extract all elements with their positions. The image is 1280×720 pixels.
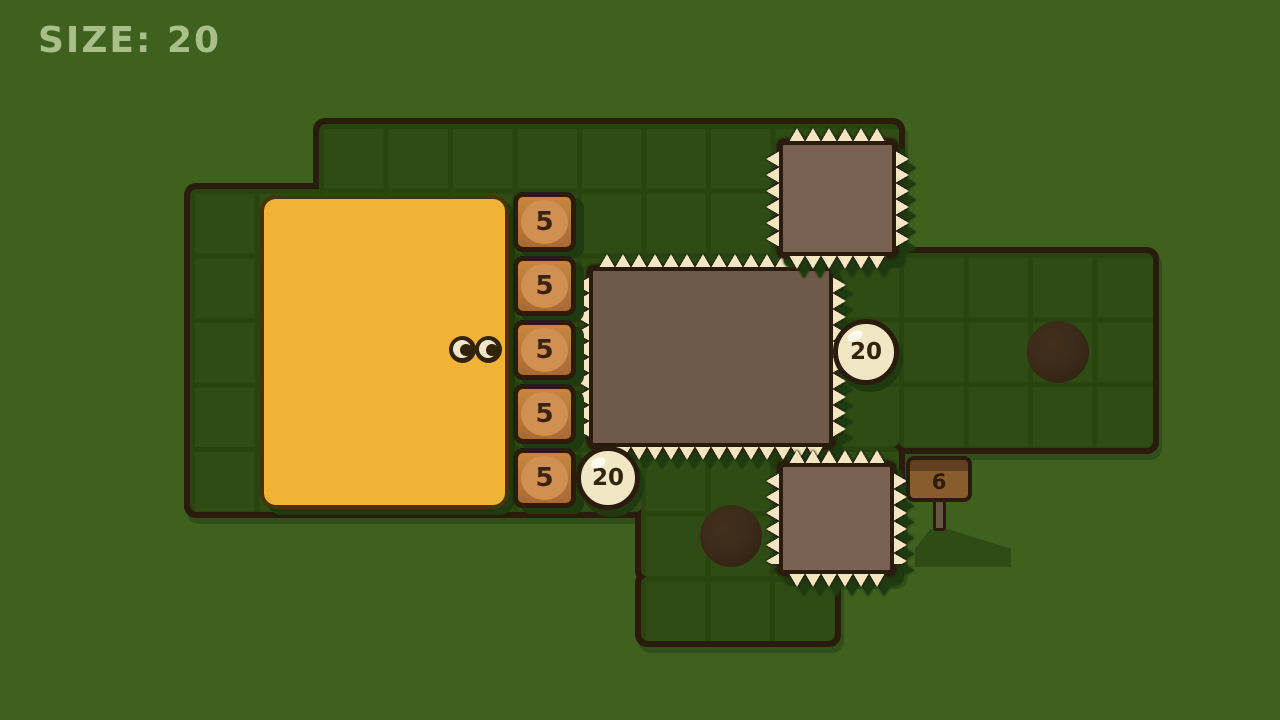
signpost-value: 6 (932, 465, 947, 494)
crate-5: 5 (513, 320, 576, 380)
crate-5: 5 (513, 448, 576, 508)
spiked-block-top-right (777, 139, 898, 258)
eye-icon (449, 336, 476, 363)
signpost: 6 (906, 456, 972, 502)
spiked-block-bottom (777, 461, 896, 576)
spikes-bottom (789, 256, 886, 269)
crate-5: 5 (513, 384, 576, 444)
spikes-left (766, 473, 779, 564)
token-20-right: 20 (833, 319, 899, 385)
eye-icon (475, 336, 502, 363)
token-value: 20 (592, 465, 624, 491)
game-viewport[interactable]: SIZE: 20 5 5 5 5 5 (0, 0, 1280, 720)
crate-5: 5 (513, 256, 576, 316)
spikes-left (576, 277, 589, 437)
signpost-pole (933, 497, 946, 531)
token-value: 20 (850, 339, 882, 365)
spikes-top (789, 450, 884, 463)
player-creature[interactable] (260, 195, 509, 509)
board-region-right-arm (899, 253, 1153, 448)
crate-value: 5 (535, 271, 553, 301)
spikes-top (789, 128, 886, 141)
crate-value: 5 (535, 335, 553, 365)
spikes-left (766, 151, 779, 246)
crate-value: 5 (535, 207, 553, 237)
hole-bottom (700, 505, 762, 567)
token-20-bottom: 20 (576, 446, 640, 510)
spiked-block-large (587, 265, 835, 449)
crate-value: 5 (535, 399, 553, 429)
crate-5: 5 (513, 192, 576, 252)
spikes-bottom (789, 574, 884, 587)
crate-value: 5 (535, 463, 553, 493)
hole-right (1027, 321, 1089, 383)
spikes-right (896, 151, 909, 246)
